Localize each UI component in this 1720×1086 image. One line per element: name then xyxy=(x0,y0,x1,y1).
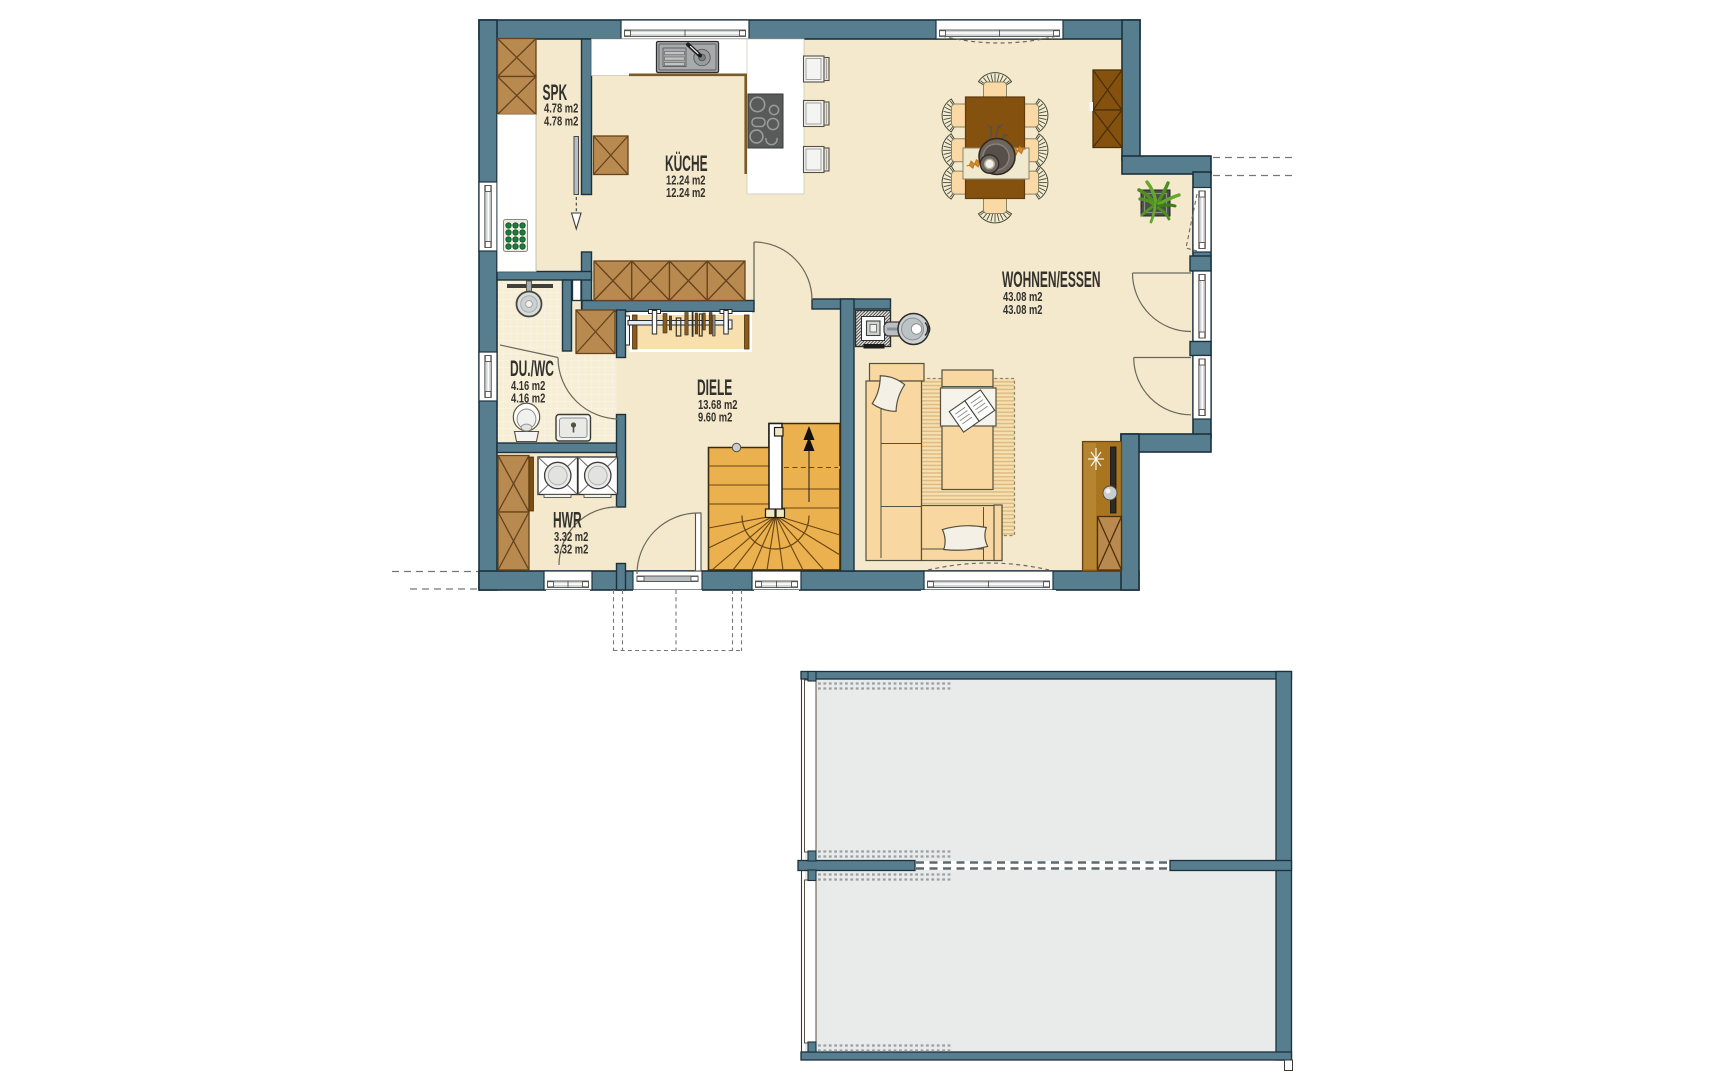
svg-text:DU./WC: DU./WC xyxy=(510,356,554,381)
svg-text:3.32 m2: 3.32 m2 xyxy=(554,543,588,557)
svg-text:12.24 m2: 12.24 m2 xyxy=(666,187,706,201)
svg-text:DIELE: DIELE xyxy=(697,375,732,400)
svg-text:WOHNEN/ESSEN: WOHNEN/ESSEN xyxy=(1002,267,1101,292)
svg-text:4.78 m2: 4.78 m2 xyxy=(544,115,578,129)
svg-text:43.08 m2: 43.08 m2 xyxy=(1003,291,1043,305)
svg-text:HWR: HWR xyxy=(553,508,582,533)
svg-text:4.78 m2: 4.78 m2 xyxy=(544,102,578,116)
svg-text:43.08 m2: 43.08 m2 xyxy=(1003,304,1043,318)
svg-text:4.16 m2: 4.16 m2 xyxy=(511,392,545,406)
svg-text:9.60 m2: 9.60 m2 xyxy=(698,411,732,425)
svg-text:KÜCHE: KÜCHE xyxy=(665,151,708,176)
